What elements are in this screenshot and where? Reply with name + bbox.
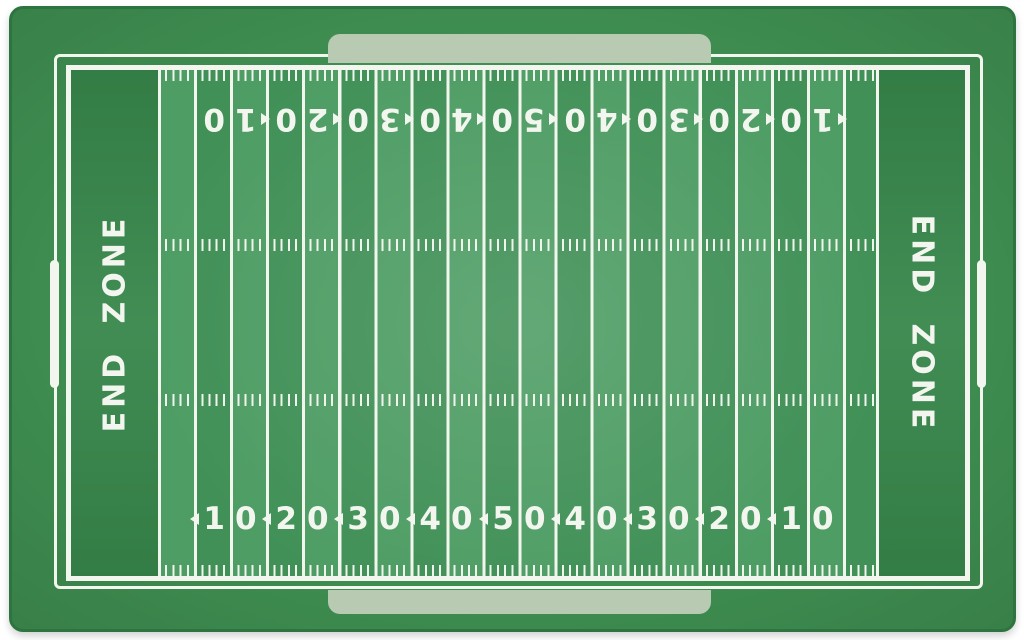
left-arrow-icon [549, 113, 558, 125]
right-goal-line [876, 70, 879, 576]
midfield: 10 20 30 40 50 40 30 20 10 10 20 30 40 5… [158, 70, 879, 576]
left-arrow-icon [694, 113, 703, 125]
right-sideline-pill [977, 260, 986, 388]
left-arrow-icon [766, 113, 775, 125]
left-arrow-icon [261, 113, 270, 125]
right-end-zone: END ZONE [879, 70, 965, 576]
bottom-yard-number-row: 10 20 30 40 50 40 30 20 10 [158, 502, 879, 536]
upper-hash-marks [158, 239, 879, 251]
left-arrow-icon [695, 513, 704, 525]
product-photo-background: END ZONE END ZONE 10 20 30 40 50 40 [0, 0, 1024, 640]
left-goal-line [158, 70, 161, 576]
left-arrow-icon [477, 113, 486, 125]
left-arrow-icon [262, 513, 271, 525]
left-end-zone: END ZONE [71, 70, 158, 576]
left-arrow-icon [406, 513, 415, 525]
right-end-zone-label: END ZONE [905, 214, 940, 432]
lower-hash-marks [158, 394, 879, 406]
left-arrow-icon [334, 513, 343, 525]
left-arrow-icon [551, 513, 560, 525]
left-arrow-icon [623, 513, 632, 525]
top-border-tick-marks [158, 70, 879, 81]
football-field-rug: END ZONE END ZONE 10 20 30 40 50 40 [9, 6, 1016, 632]
left-sideline-pill [50, 260, 59, 388]
top-yard-number-row: 10 20 30 40 50 40 30 20 10 [158, 102, 879, 136]
rug-top-tab [328, 34, 711, 63]
playing-field: END ZONE END ZONE 10 20 30 40 50 40 [66, 65, 970, 581]
left-arrow-icon [333, 113, 342, 125]
left-arrow-icon [838, 113, 847, 125]
left-arrow-icon [479, 513, 488, 525]
rug-bottom-tab [328, 590, 711, 614]
left-arrow-icon [622, 113, 631, 125]
bottom-border-tick-marks [158, 565, 879, 576]
left-end-zone-label: END ZONE [97, 214, 132, 432]
left-arrow-icon [190, 513, 199, 525]
left-arrow-icon [767, 513, 776, 525]
left-arrow-icon [405, 113, 414, 125]
